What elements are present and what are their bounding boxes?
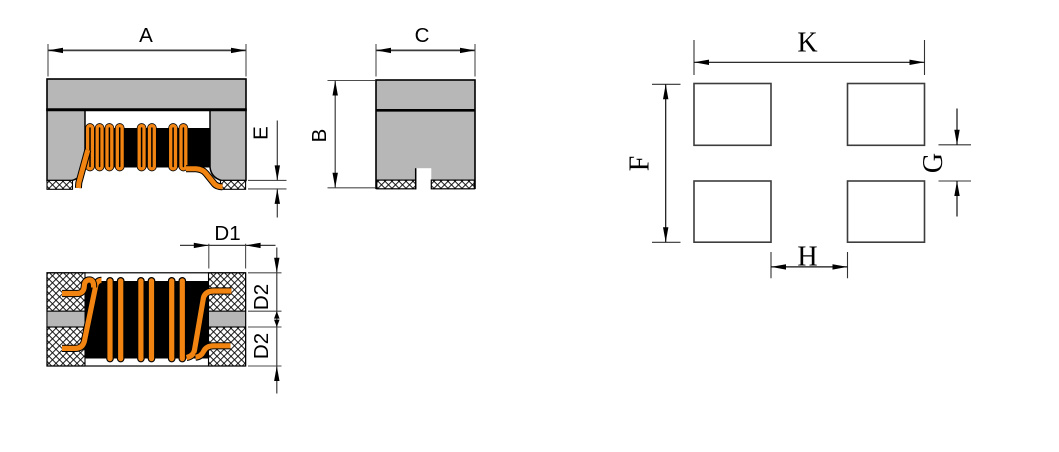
svg-text:C: C (415, 24, 430, 47)
svg-text:D2: D2 (250, 284, 273, 310)
svg-text:G: G (918, 153, 949, 173)
svg-text:B: B (308, 129, 331, 143)
svg-text:D1: D1 (214, 222, 240, 245)
svg-text:E: E (250, 126, 273, 140)
svg-text:H: H (797, 242, 817, 273)
svg-text:F: F (625, 156, 656, 172)
svg-text:D2: D2 (250, 333, 273, 359)
svg-text:K: K (797, 28, 817, 59)
svg-text:A: A (139, 24, 153, 47)
